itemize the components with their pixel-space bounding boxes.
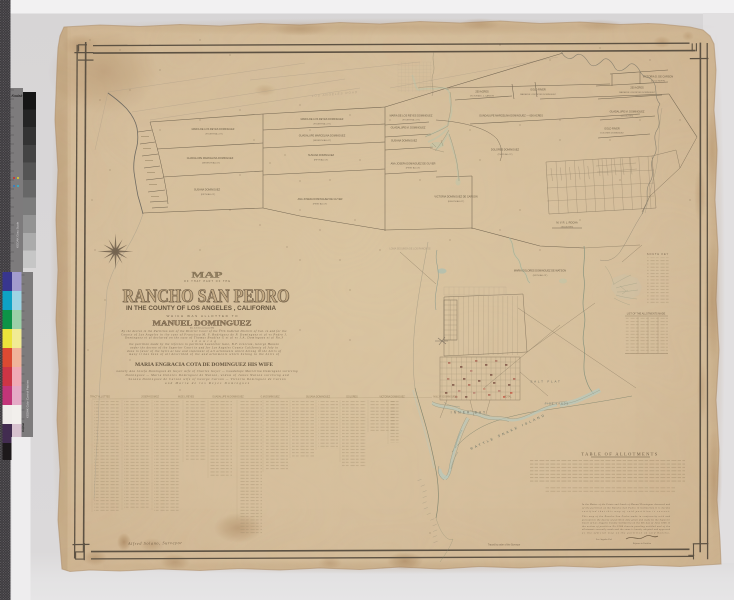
svg-text:VICTORIA DOMINGUEZ: VICTORIA DOMINGUEZ <box>379 396 405 399</box>
svg-text:as the official map of the par: as the official map of the partition of … <box>582 532 670 535</box>
svg-text:(300 ACRES): (300 ACRES) <box>561 226 574 229</box>
svg-text:KODAK Gray Scale: KODAK Gray Scale <box>15 221 19 248</box>
svg-text:SUSANA DOMINGUEZ: SUSANA DOMINGUEZ <box>308 154 335 157</box>
svg-text:(EIGHTH ALLOT): (EIGHTH ALLOT) <box>448 200 465 203</box>
svg-text:(FOURTH ALLOT): (FOURTH ALLOT) <box>205 133 222 136</box>
svg-text:LOMA SEGUNDA DE LOS RANCHOS: LOMA SEGUNDA DE LOS RANCHOS <box>389 248 430 251</box>
svg-text:Traced by order of the Surveyo: Traced by order of the Surveyor <box>488 544 521 547</box>
svg-text:GOLD RIVER: GOLD RIVER <box>530 89 546 92</box>
svg-text:Kodak: Kodak <box>12 94 24 98</box>
svg-text:DOLORES DOMINGUEZ: DOLORES DOMINGUEZ <box>600 133 624 135</box>
svg-text:(FIRST ALLOT): (FIRST ALLOT) <box>406 167 421 170</box>
svg-text:Referees in Partition: Referees in Partition <box>632 542 651 545</box>
svg-text:(FOURTH ALLOT): (FOURTH ALLOT) <box>402 119 419 122</box>
svg-text:DOLORES DOMINGUEZ: DOLORES DOMINGUEZ <box>491 149 520 152</box>
svg-text:ANA JOSEFA DOMINGUEZ DE GUYER: ANA JOSEFA DOMINGUEZ DE GUYER <box>391 163 436 166</box>
svg-text:MARIA DE LOS REYES DOMINGUEZ: MARIA DE LOS REYES DOMINGUEZ <box>619 91 655 94</box>
svg-text:MARIA DE LOS REYES DOMINGUEZ: MARIA DE LOS REYES DOMINGUEZ <box>192 128 235 131</box>
svg-text:MARIA DE LOS REYES DOMINGUEZ: MARIA DE LOS REYES DOMINGUEZ <box>390 115 433 118</box>
svg-text:SALT FLAT: SALT FLAT <box>530 380 561 384</box>
svg-text:250 ACRES: 250 ACRES <box>630 87 644 90</box>
svg-text:MARIA DE LOS REYES DOMINGUEZ: MARIA DE LOS REYES DOMINGUEZ <box>301 118 344 121</box>
svg-text:GUADALUPE MARCELINA DOMINGUEZ: GUADALUPE MARCELINA DOMINGUEZ <box>187 157 234 160</box>
svg-text:LIST OF THE ALLOTMENTS MADE: LIST OF THE ALLOTMENTS MADE <box>627 313 666 316</box>
svg-text:and Maria de los Reyes Doming: and Maria de los Reyes Dominguez <box>165 381 250 385</box>
svg-text:TRACT ALLOTTED: TRACT ALLOTTED <box>90 396 110 399</box>
svg-text:KODAK Color Control Patches: KODAK Color Control Patches <box>26 379 30 418</box>
svg-text:M. V. R. L. ROCHA: M. V. R. L. ROCHA <box>556 222 578 225</box>
svg-text:MARIA DE LOS REYES DOMINGUEZ: MARIA DE LOS REYES DOMINGUEZ <box>520 93 556 96</box>
svg-text:MARIA DOLORES DOMINGUEZ DE WAT: MARIA DOLORES DOMINGUEZ DE WATSON <box>514 270 566 273</box>
svg-text:M.& J.F. DOMINGUEZ: M.& J.F. DOMINGUEZ <box>434 397 458 399</box>
svg-text:IN THE COUNTY OF LOS ANGELES ,: IN THE COUNTY OF LOS ANGELES , CALIFORNI… <box>126 306 277 312</box>
svg-text:many it has been of all descri: many it has been of all described of the… <box>129 352 280 356</box>
svg-text:GUADALUPE MARCELINA DOMINGUEZ: GUADALUPE MARCELINA DOMINGUEZ — 600 ACRE… <box>479 115 543 118</box>
svg-text:GUADALUPE M. DOMINGUEZ: GUADALUPE M. DOMINGUEZ <box>610 111 645 114</box>
svg-text:(SEVENTH ALLOT): (SEVENTH ALLOT) <box>202 162 221 165</box>
svg-text:Kodak: Kodak <box>21 423 25 433</box>
svg-text:(600 ACRES): (600 ACRES) <box>621 115 634 118</box>
svg-text:TABLE OF ALLOTMENTS: TABLE OF ALLOTMENTS <box>581 452 658 457</box>
svg-text:(THIRD ALLOT): (THIRD ALLOT) <box>498 153 513 156</box>
svg-text:ANA JOSEFA DOMINGUEZ DE GUYER: ANA JOSEFA DOMINGUEZ DE GUYER <box>298 198 343 201</box>
svg-text:(FIFTH ALLOT): (FIFTH ALLOT) <box>314 159 329 162</box>
svg-text:(FOURTH ALLOT): (FOURTH ALLOT) <box>313 123 330 126</box>
svg-text:(GOLD RIVER): (GOLD RIVER) <box>651 81 666 83</box>
svg-text:DOLORES: DOLORES <box>346 397 358 399</box>
svg-text:INNER BAY: INNER BAY <box>451 411 488 415</box>
svg-text:(FIFTH ALLOT): (FIFTH ALLOT) <box>201 193 216 196</box>
svg-text:(FIRST ALLOT): (FIRST ALLOT) <box>313 203 328 206</box>
svg-text:JOSEFA DOMGZ: JOSEFA DOMGZ <box>141 396 159 399</box>
svg-text:RANCHO SAN PEDRO: RANCHO SAN PEDRO <box>123 286 290 307</box>
svg-text:GUADALUPE M. DOMINGUEZ: GUADALUPE M. DOMINGUEZ <box>391 127 426 130</box>
svg-text:VICTORIA D. DE CARSON: VICTORIA D. DE CARSON <box>643 76 674 79</box>
svg-text:SUSANA DOMINGUEZ: SUSANA DOMINGUEZ <box>194 189 221 192</box>
svg-text:GUADALUPE MARCELINA DOMINGUEZ: GUADALUPE MARCELINA DOMINGUEZ <box>299 135 346 138</box>
svg-text:SOUTH KEY: SOUTH KEY <box>647 252 669 256</box>
svg-text:TOTAL: TOTAL <box>504 396 512 399</box>
svg-text:Los Angeles Cal.: Los Angeles Cal. <box>595 538 613 541</box>
svg-text:MARIA ENGRACIA COTA DE DOMINGU: MARIA ENGRACIA COTA DE DOMINGUEZ HIS WIF… <box>135 363 274 368</box>
svg-text:TIDE LANDS: TIDE LANDS <box>545 403 569 406</box>
svg-text:(SEVENTH ALLOT): (SEVENTH ALLOT) <box>313 139 332 142</box>
svg-text:250 ACRES: 250 ACRES <box>475 91 489 94</box>
svg-text:M.DE L.REYES: M.DE L.REYES <box>178 397 195 399</box>
svg-text:MANUEL DOMINGUEZ: MANUEL DOMINGUEZ <box>153 319 252 328</box>
svg-text:certified that this map of sai: certified that this map of said partitio… <box>582 510 670 513</box>
svg-text:OF THAT PART OF THE: OF THAT PART OF THE <box>184 280 230 283</box>
svg-text:GUADALUPE M.DOMINGUEZ: GUADALUPE M.DOMINGUEZ <box>212 396 244 399</box>
svg-text:VICTORIA DOMINGUEZ DE CARSON: VICTORIA DOMINGUEZ DE CARSON <box>434 196 477 199</box>
svg-text:SUSANA DOMINGUEZ: SUSANA DOMINGUEZ <box>391 140 418 143</box>
svg-text:WHICH WAS ALLOTTED TO: WHICH WAS ALLOTTED TO <box>167 314 239 318</box>
svg-text:(SIXTH ALLOT): (SIXTH ALLOT) <box>533 274 548 277</box>
svg-text:GOLD RIVER: GOLD RIVER <box>604 128 620 131</box>
svg-text:MAP: MAP <box>192 270 223 280</box>
svg-text:VICTORIA D. J. CARSON: VICTORIA D. J. CARSON <box>470 95 494 98</box>
